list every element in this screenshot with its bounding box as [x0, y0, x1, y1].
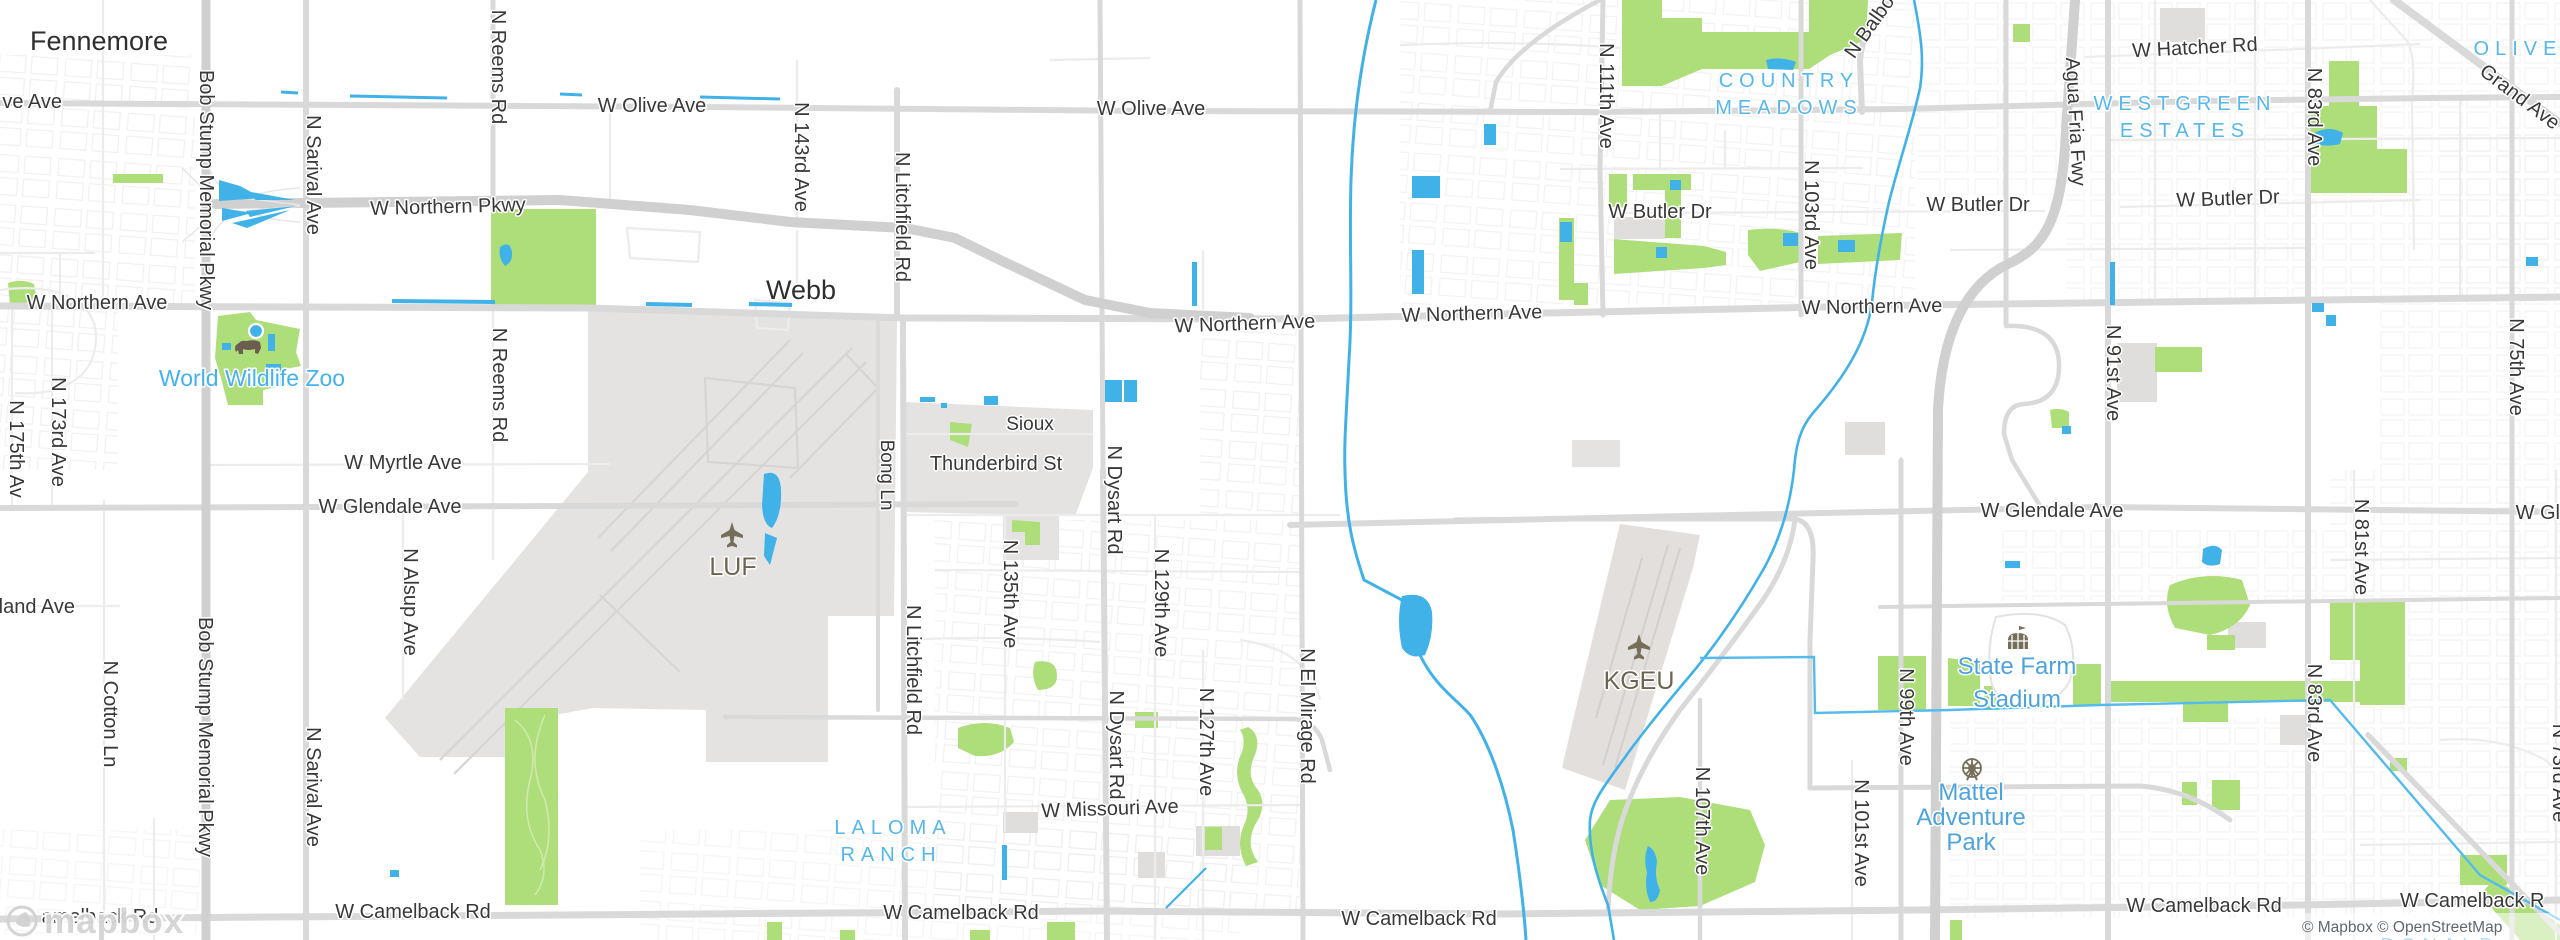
svg-text:State Farm: State Farm — [1958, 653, 2077, 680]
svg-text:WESTGREEN: WESTGREEN — [2094, 93, 2277, 115]
svg-text:ve Ave: ve Ave — [2, 91, 62, 113]
svg-text:W Camelback Rd: W Camelback Rd — [335, 901, 491, 923]
svg-text:N 81st Ave: N 81st Ave — [2350, 499, 2372, 595]
svg-text:W Butler Dr: W Butler Dr — [1926, 194, 2030, 216]
svg-text:N Cotton Ln: N Cotton Ln — [99, 661, 121, 768]
svg-text:OLIVE: OLIVE — [2474, 38, 2560, 60]
svg-text:Fennemore: Fennemore — [30, 26, 168, 56]
svg-text:N Sarival Ave: N Sarival Ave — [302, 727, 324, 847]
svg-text:N 103rd Ave: N 103rd Ave — [1800, 160, 1822, 270]
svg-text:N Alsup Ave: N Alsup Ave — [399, 548, 421, 655]
svg-text:N Dysart Rd: N Dysart Rd — [1103, 446, 1125, 555]
svg-text:W Camelback Rd: W Camelback Rd — [2126, 895, 2282, 917]
svg-text:N 91st Ave: N 91st Ave — [2102, 325, 2124, 421]
svg-text:land Ave: land Ave — [0, 596, 75, 618]
svg-text:N Litchfield Rd: N Litchfield Rd — [891, 152, 913, 282]
svg-text:W Olive Ave: W Olive Ave — [598, 95, 707, 117]
svg-text:World Wildlife Zoo: World Wildlife Zoo — [159, 365, 345, 391]
svg-text:Adventure: Adventure — [1916, 804, 2025, 831]
svg-text:LALOMA: LALOMA — [834, 817, 951, 839]
svg-text:N Litchfield Rd: N Litchfield Rd — [902, 605, 924, 735]
svg-text:N Reems Rd: N Reems Rd — [488, 328, 510, 442]
svg-text:N Sarival Ave: N Sarival Ave — [302, 115, 324, 235]
svg-text:N 173rd Ave: N 173rd Ave — [47, 377, 69, 487]
svg-text:ESTATES: ESTATES — [2120, 120, 2250, 142]
svg-text:Bob Stump Memorial Pkwy: Bob Stump Memorial Pkwy — [194, 617, 216, 857]
svg-text:N 83rd Ave: N 83rd Ave — [2303, 664, 2325, 763]
svg-text:Sioux: Sioux — [1006, 414, 1054, 435]
svg-text:W Gl: W Gl — [2516, 502, 2560, 524]
svg-text:KGEU: KGEU — [1604, 667, 1675, 695]
svg-text:Mattel: Mattel — [1938, 779, 2003, 806]
svg-text:N Dysart Rd: N Dysart Rd — [1105, 691, 1127, 800]
svg-text:N 135th Ave: N 135th Ave — [999, 540, 1021, 649]
svg-text:N Reems Rd: N Reems Rd — [487, 10, 509, 124]
svg-text:N 111th Ave: N 111th Ave — [1595, 43, 1617, 149]
svg-text:LUF: LUF — [709, 553, 756, 581]
svg-text:N 101st Ave: N 101st Ave — [1850, 779, 1872, 886]
svg-text:N 75th Ave: N 75th Ave — [2505, 318, 2527, 415]
svg-text:N 83rd Ave: N 83rd Ave — [2303, 68, 2325, 167]
svg-text:W Northern Ave: W Northern Ave — [1401, 301, 1542, 327]
svg-text:Bong Ln: Bong Ln — [876, 440, 897, 511]
svg-text:Bob Stump Memorial Pkwy: Bob Stump Memorial Pkwy — [195, 70, 217, 310]
svg-text:N 129th Ave: N 129th Ave — [1150, 549, 1172, 658]
svg-text:MEADOWS: MEADOWS — [1715, 97, 1863, 119]
svg-text:Stadium: Stadium — [1973, 686, 2061, 713]
svg-text:RANCH: RANCH — [840, 844, 941, 866]
svg-text:mapbox: mapbox — [44, 902, 184, 940]
svg-text:W Glendale Ave: W Glendale Ave — [1980, 500, 2123, 522]
svg-text:N 127th Ave: N 127th Ave — [1195, 688, 1217, 797]
svg-text:W Glendale Ave: W Glendale Ave — [318, 496, 461, 518]
svg-text:N El Mirage Rd: N El Mirage Rd — [1296, 648, 1318, 784]
svg-text:N 175th Av: N 175th Av — [5, 400, 27, 497]
svg-text:COUNTRY: COUNTRY — [1719, 70, 1860, 92]
svg-text:Park: Park — [1946, 829, 1996, 856]
svg-text:Thunderbird St: Thunderbird St — [930, 453, 1063, 475]
svg-text:W Northern Ave: W Northern Ave — [27, 292, 168, 314]
svg-text:N 99th Ave: N 99th Ave — [1895, 668, 1917, 765]
svg-text:W Butler Dr: W Butler Dr — [2176, 186, 2280, 212]
svg-text:W Northern Ave: W Northern Ave — [1801, 295, 1942, 319]
svg-text:W Myrtle Ave: W Myrtle Ave — [344, 452, 461, 474]
svg-text:W Olive Ave: W Olive Ave — [1097, 98, 1206, 120]
svg-text:N 107th Ave: N 107th Ave — [1691, 767, 1713, 876]
svg-text:W Camelback Rd: W Camelback Rd — [1341, 908, 1497, 930]
svg-text:N 73rd Ave: N 73rd Ave — [2548, 724, 2560, 823]
svg-text:Webb: Webb — [766, 275, 836, 305]
svg-text:W Camelback Rd: W Camelback Rd — [883, 902, 1039, 924]
svg-text:N 143rd Ave: N 143rd Ave — [790, 102, 812, 212]
svg-text:W Northern Pkwy: W Northern Pkwy — [370, 194, 526, 220]
svg-text:© Mapbox © OpenStreetMap: © Mapbox © OpenStreetMap — [2302, 919, 2502, 936]
svg-text:W Camelback R: W Camelback R — [2400, 890, 2544, 912]
svg-text:W Butler Dr: W Butler Dr — [1608, 201, 1712, 223]
